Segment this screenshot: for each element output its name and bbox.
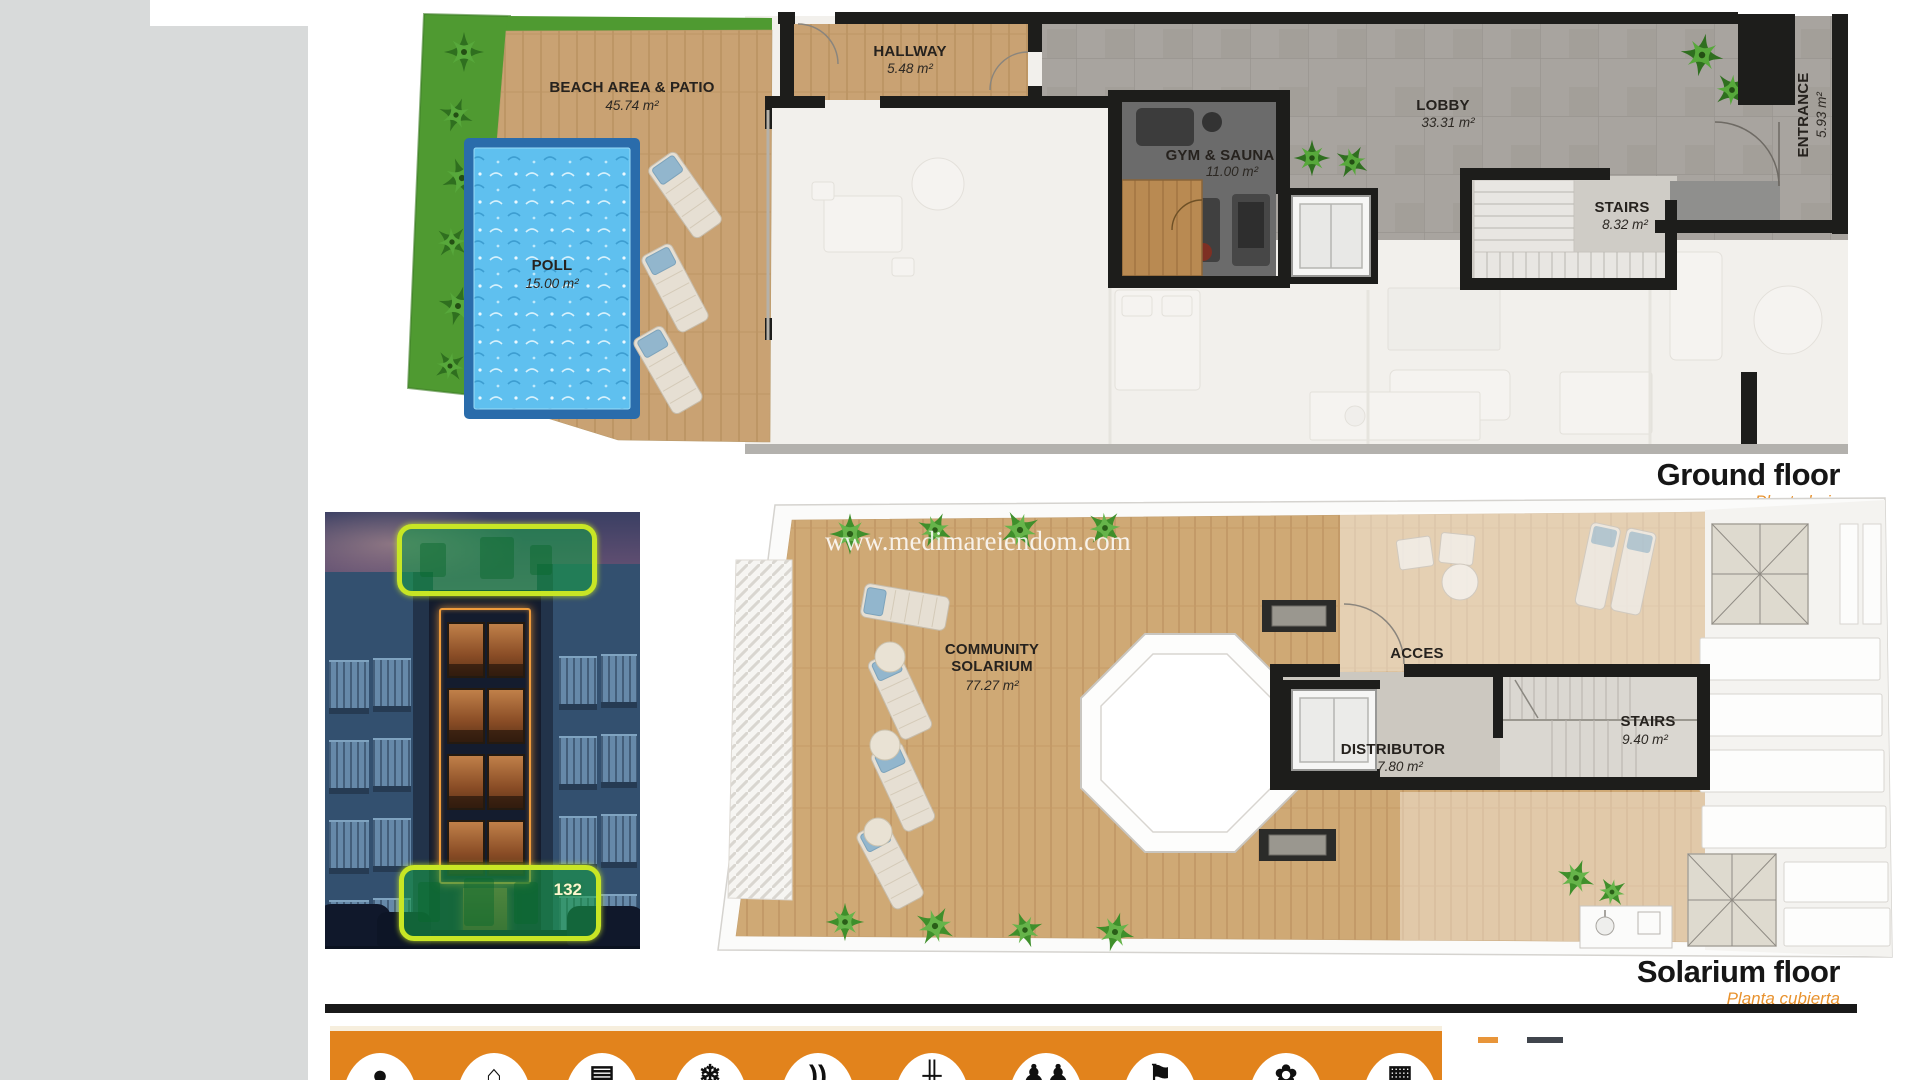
flag-icon: ⚑ bbox=[1123, 1062, 1197, 1080]
community-solarium-size: 77.27 m² bbox=[965, 678, 1019, 693]
pool-label: POLL bbox=[532, 257, 573, 274]
feature-badge: ╫ bbox=[895, 1053, 969, 1080]
lobby-size: 33.31 m² bbox=[1421, 115, 1475, 130]
ground-stairs-size: 8.32 m² bbox=[1602, 217, 1648, 232]
octagon-skylight bbox=[1081, 634, 1299, 852]
home-icon: ⌂ bbox=[457, 1062, 531, 1080]
solarium-floor-caption: Solarium floor Planta cubierta bbox=[1360, 956, 1840, 1007]
feature-badge: ▦ bbox=[1363, 1053, 1437, 1080]
sauna bbox=[1122, 180, 1202, 276]
solarium-floor-plan: www.medimareiendom.com COMMUNITY SOLARIU… bbox=[700, 420, 1920, 965]
roof-vent-top bbox=[1262, 600, 1336, 632]
entrance-size: 5.93 m² bbox=[1814, 92, 1829, 138]
elevator bbox=[1278, 188, 1378, 284]
feature-badge: ♟♟ bbox=[1009, 1053, 1083, 1080]
ground-floor-plan: BEACH AREA & PATIO 45.74 m² POLL 15.00 m… bbox=[380, 0, 1860, 458]
distributor-label: DISTRIBUTOR bbox=[1341, 741, 1445, 758]
orange-dash bbox=[1478, 1037, 1498, 1043]
acces-label: ACCES bbox=[1390, 645, 1444, 662]
community-solarium-label-2: SOLARIUM bbox=[951, 658, 1033, 675]
feature-badge: ● bbox=[343, 1053, 417, 1080]
feature-badge: ▤ bbox=[565, 1053, 639, 1080]
gym-size: 11.00 m² bbox=[1206, 164, 1259, 179]
beach-area-size: 45.74 m² bbox=[605, 98, 659, 113]
watermark: www.medimareiendom.com bbox=[825, 526, 1131, 556]
ground-stairs bbox=[1466, 176, 1677, 288]
unit-number-badge: 132 bbox=[554, 880, 582, 900]
beach-area-label: BEACH AREA & PATIO bbox=[549, 79, 714, 96]
people-icon: ♟♟ bbox=[1009, 1062, 1083, 1080]
solarium-stairs-label: STAIRS bbox=[1620, 713, 1675, 730]
building-icon: ▦ bbox=[1363, 1062, 1437, 1080]
page: BEACH AREA & PATIO 45.74 m² POLL 15.00 m… bbox=[0, 0, 1920, 1080]
ground-stairs-label: STAIRS bbox=[1594, 199, 1649, 216]
ground-highlight-box: 132 bbox=[399, 865, 601, 941]
garden-icon: ✿ bbox=[1249, 1062, 1323, 1080]
community-solarium-label-1: COMMUNITY bbox=[945, 641, 1039, 658]
arches-icon: )) bbox=[781, 1062, 855, 1080]
kitchenette bbox=[1580, 906, 1672, 948]
feature-icon-bar: ● ⌂ ▤ ❄ )) ╫ ♟♟ ⚑ ✿ ▦ bbox=[330, 1026, 1442, 1080]
location-icon: ● bbox=[343, 1062, 417, 1080]
gym-label: GYM & SAUNA bbox=[1166, 147, 1275, 164]
feature-badge: ❄ bbox=[673, 1053, 747, 1080]
divider-line bbox=[325, 1004, 1857, 1013]
roof-vent-bottom bbox=[1259, 829, 1336, 861]
feature-badge: ✿ bbox=[1249, 1053, 1323, 1080]
pool-size: 15.00 m² bbox=[525, 276, 579, 291]
lobby-label: LOBBY bbox=[1416, 97, 1470, 114]
feature-badge: )) bbox=[781, 1053, 855, 1080]
entrance-label: ENTRANCE bbox=[1795, 73, 1812, 158]
hallway-label: HALLWAY bbox=[873, 43, 946, 60]
left-panel-notch bbox=[150, 0, 308, 26]
feature-badge: ⌂ bbox=[457, 1053, 531, 1080]
solarium-floor-title: Solarium floor bbox=[1360, 956, 1840, 989]
crossroads-icon: ╫ bbox=[895, 1062, 969, 1080]
feature-badge: ⚑ bbox=[1123, 1053, 1197, 1080]
solarium-stairs-size: 9.40 m² bbox=[1622, 732, 1668, 747]
skylight-top-right bbox=[1712, 524, 1808, 624]
air-conditioning-icon: ❄ bbox=[673, 1062, 747, 1080]
left-pergola bbox=[728, 560, 792, 900]
solarium-highlight-box bbox=[397, 524, 597, 596]
distributor-size: 7.80 m² bbox=[1377, 759, 1423, 774]
skylight-bottom-right bbox=[1688, 854, 1776, 946]
elevator-icon: ▤ bbox=[565, 1062, 639, 1080]
left-gray-panel bbox=[0, 0, 308, 1080]
dark-dash bbox=[1527, 1037, 1563, 1043]
building-night-photo: 132 bbox=[325, 512, 640, 949]
hallway-size: 5.48 m² bbox=[887, 61, 933, 76]
